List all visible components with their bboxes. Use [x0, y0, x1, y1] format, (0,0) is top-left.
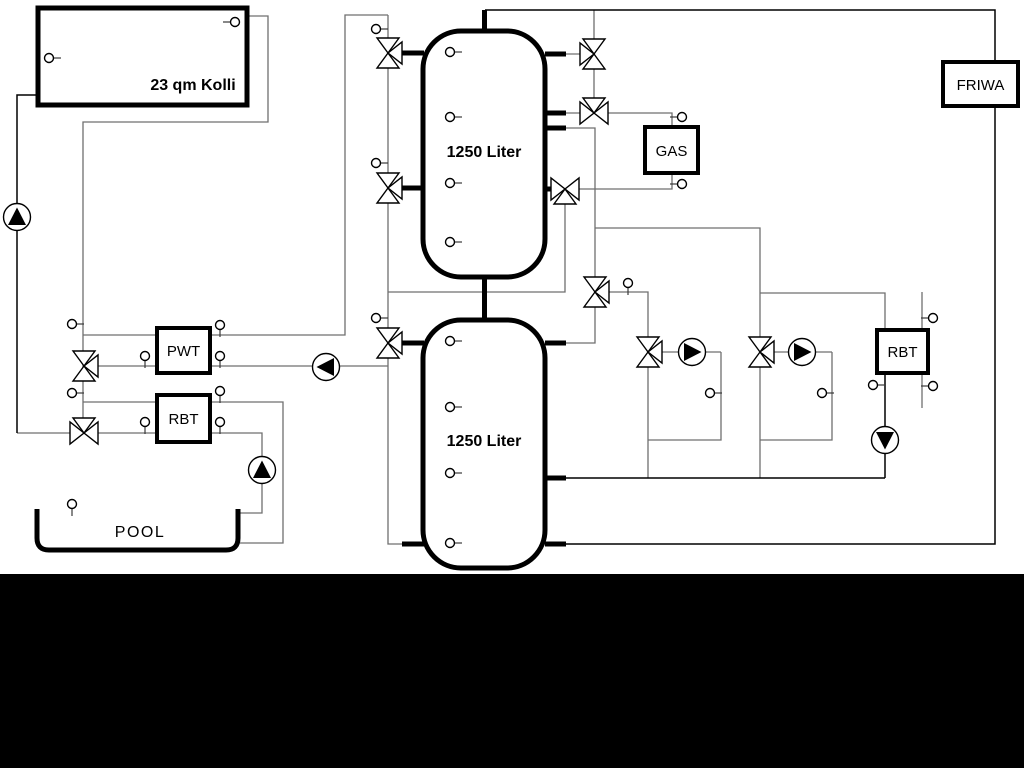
rbt-pool-label: RBT: [169, 411, 199, 428]
gas-boiler-label: GAS: [656, 143, 688, 160]
sensor-bulb: [446, 48, 455, 57]
sensor-bulb: [68, 389, 77, 398]
sensor-bulb: [216, 321, 225, 330]
solar-collector-label: 23 qm Kolli: [150, 77, 235, 94]
sensor-bulb: [372, 314, 381, 323]
sensor-bulb: [216, 352, 225, 361]
schematic-page: 23 qm Kolli 1250 Liter 1250 Liter GAS FR…: [0, 0, 1024, 768]
sensor-bulb: [68, 320, 77, 329]
sensor-bulb: [678, 180, 687, 189]
sensor-bulb: [446, 539, 455, 548]
sensor-bulb: [818, 389, 827, 398]
sensor-bulb: [446, 179, 455, 188]
sensor-bulb: [446, 238, 455, 247]
pump-solar-pwt: [313, 354, 340, 381]
sensor-bulb: [929, 314, 938, 323]
pump-heating-circuit-2: [789, 339, 816, 366]
sensor-bulb: [216, 387, 225, 396]
sensor-bulb: [141, 352, 150, 361]
pool-label: POOL: [115, 524, 165, 541]
sensor-bulb: [869, 381, 878, 390]
buffer-tank-lower-label: 1250 Liter: [447, 433, 522, 450]
pool-basin: POOL: [37, 509, 238, 550]
sensor-bulb: [706, 389, 715, 398]
pwt-label: PWT: [167, 343, 200, 360]
rbt-pool-heat-exchanger: RBT: [157, 395, 210, 442]
pump-heating-circuit-1: [679, 339, 706, 366]
sensor-bulb: [446, 113, 455, 122]
sensor-bulb: [624, 279, 633, 288]
sensor-bulb: [372, 25, 381, 34]
sensor-bulb: [446, 337, 455, 346]
sensor-bulb: [372, 159, 381, 168]
sensor-bulb: [231, 18, 240, 27]
pwt-heat-exchanger: PWT: [157, 328, 210, 373]
sensor-bulb: [446, 469, 455, 478]
buffer-tank-lower: 1250 Liter: [423, 320, 545, 568]
sensor-bulb: [45, 54, 54, 63]
buffer-tank-upper: 1250 Liter: [423, 31, 545, 277]
pump-rbt-heating: [872, 427, 899, 454]
sensor-bulb: [446, 403, 455, 412]
rbt-heating-heat-exchanger: RBT: [877, 330, 928, 373]
diagram-canvas: 23 qm Kolli 1250 Liter 1250 Liter GAS FR…: [0, 0, 1024, 768]
sensor-bulb: [678, 113, 687, 122]
solar-collector: 23 qm Kolli: [38, 8, 247, 105]
bottom-band: [0, 574, 1024, 768]
friwa-station: FRIWA: [943, 62, 1018, 106]
pump-pool: [249, 457, 276, 484]
friwa-label: FRIWA: [957, 77, 1005, 94]
buffer-tank-upper-label: 1250 Liter: [447, 144, 522, 161]
sensor-bulb: [141, 418, 150, 427]
sensor-bulb: [929, 382, 938, 391]
pump-solar-collector: [4, 204, 31, 231]
gas-boiler: GAS: [645, 127, 698, 173]
sensor-bulb: [68, 500, 77, 509]
sensor-bulb: [216, 418, 225, 427]
rbt-heating-label: RBT: [888, 344, 918, 361]
